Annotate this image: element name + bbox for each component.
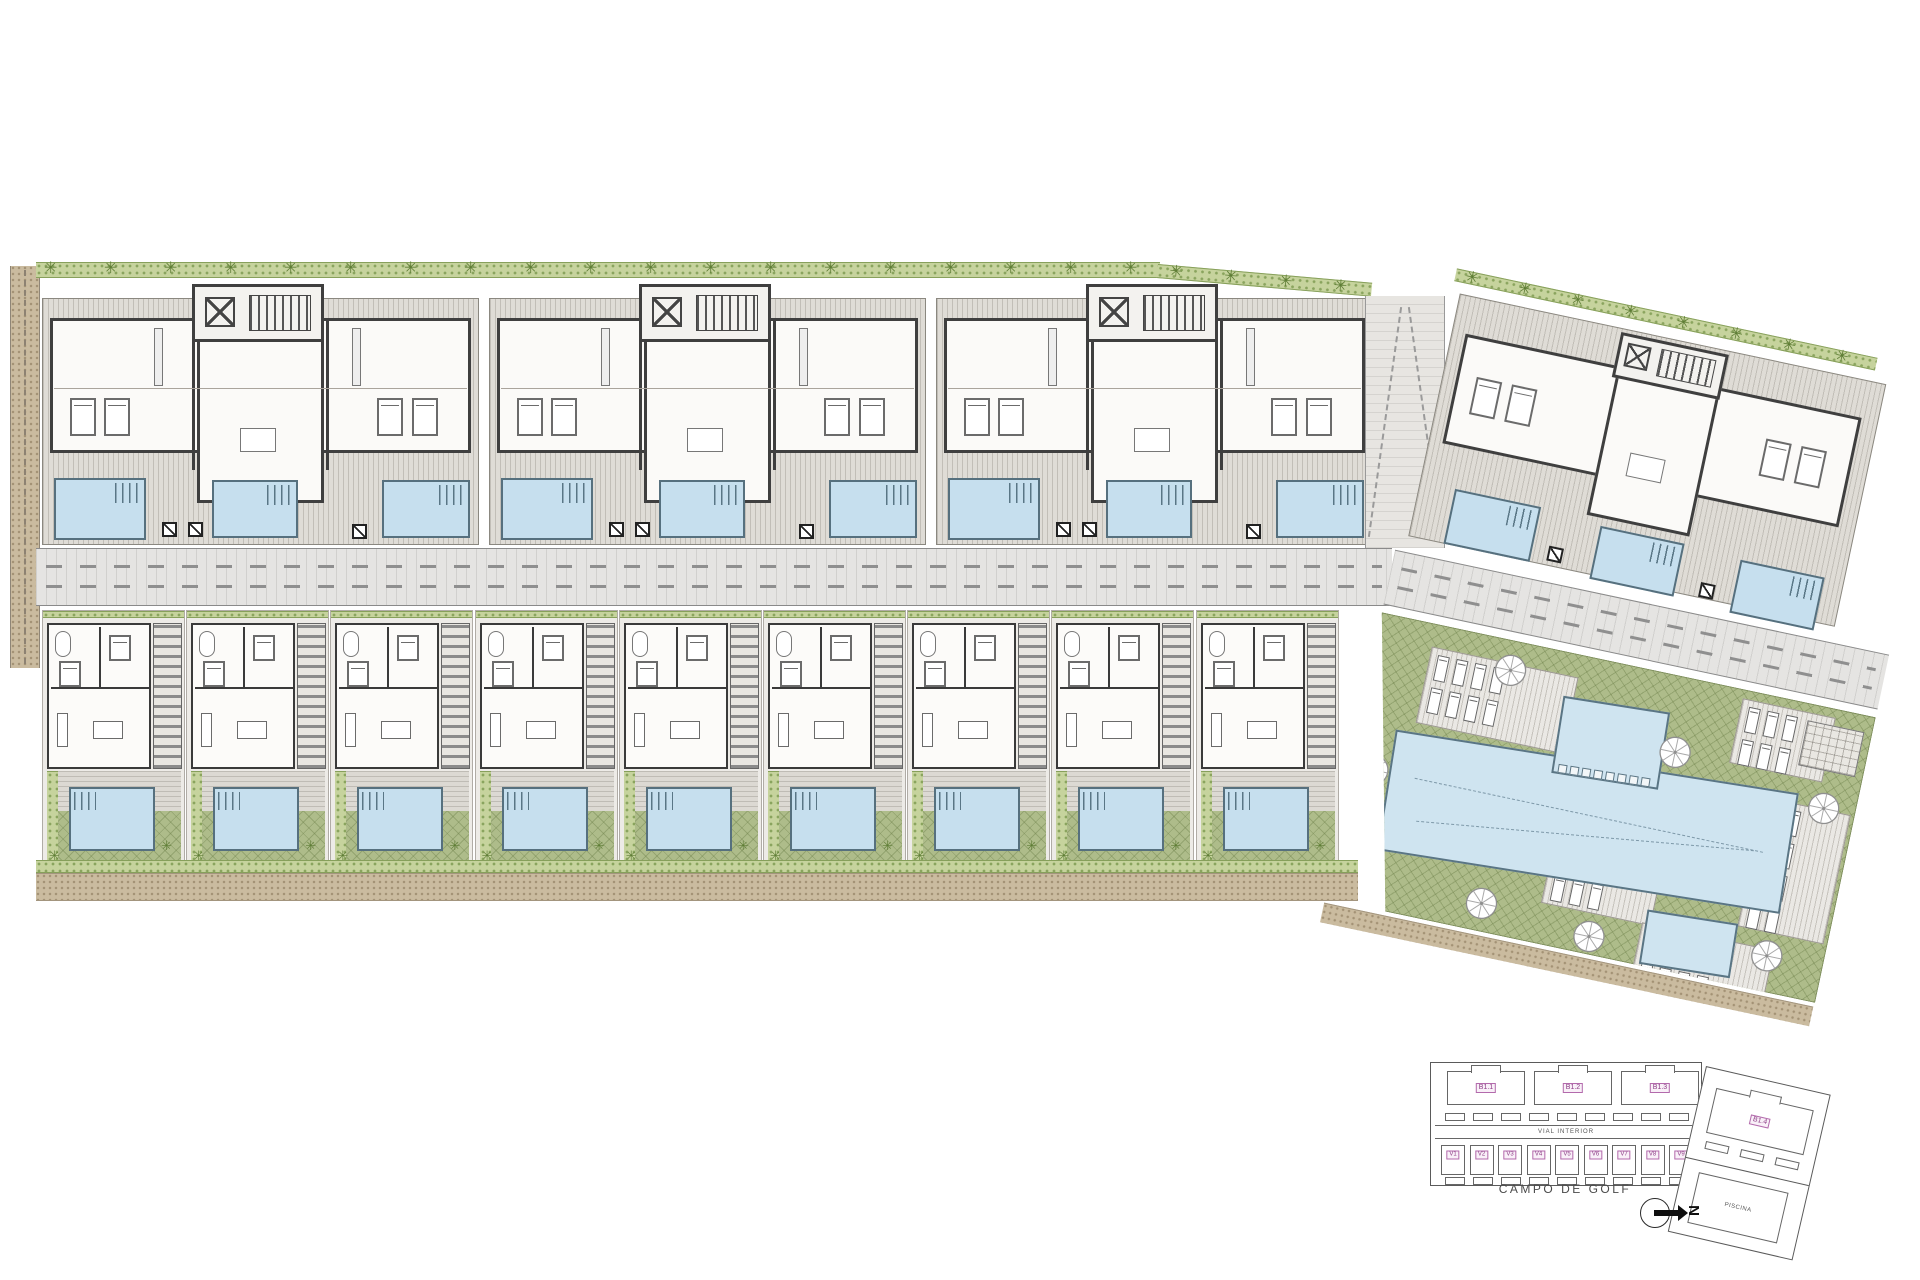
villa-pool: [357, 787, 443, 851]
palm-tree-icon: ✳: [449, 839, 460, 852]
villa-house: [1201, 623, 1305, 769]
palm-tree-icon: ✳: [344, 261, 357, 277]
sun-lounger: [1762, 711, 1779, 739]
palm-tree-icon: ✳: [404, 261, 417, 277]
bed: [70, 398, 96, 436]
parasol-icon: [1461, 883, 1501, 923]
villa-front-hedge: [331, 611, 472, 618]
villa-house: [624, 623, 728, 769]
bed: [551, 398, 577, 436]
palm-tree-icon: ✳: [1169, 264, 1184, 281]
partition-wall: [1205, 687, 1303, 689]
sofa: [634, 713, 645, 747]
partition-wall: [772, 687, 870, 689]
sun-lounger: [1433, 655, 1450, 683]
partition-wall: [99, 627, 101, 687]
key-plan-pad: [1445, 1113, 1465, 1121]
bathtub-icon: [632, 631, 648, 657]
drain-box: [1698, 582, 1716, 600]
elevator-icon: [1099, 297, 1129, 327]
villa-4: ✳ ✳: [475, 610, 618, 872]
key-plan-pad: [1739, 1149, 1764, 1162]
villa-6: ✳ ✳: [763, 610, 906, 872]
villa-label: V7: [1617, 1151, 1630, 1160]
key-plan-pad: [1501, 1113, 1521, 1121]
table: [687, 428, 723, 452]
bottom-hedge: [36, 860, 1358, 873]
villa-stairs: [874, 623, 903, 769]
stairs-icon: [1656, 349, 1717, 388]
palm-tree-icon: ✳: [284, 261, 297, 277]
block-building-center: [644, 318, 771, 503]
villa-3: ✳ ✳: [330, 610, 473, 872]
unit-divider-wall: [773, 318, 776, 470]
bed: [412, 398, 438, 436]
sofa: [345, 713, 356, 747]
palm-tree-icon: ✳: [1223, 269, 1238, 286]
villa-label: V4: [1532, 1151, 1545, 1160]
sun-lounger: [1426, 687, 1443, 715]
villa-label: V1: [1446, 1151, 1459, 1160]
parasol-icon: [1804, 788, 1844, 828]
villa-house: [191, 623, 295, 769]
bathtub-icon: [199, 631, 215, 657]
private-pool: [948, 478, 1040, 540]
gravel-path-left: [10, 266, 40, 668]
block-label: B1.3: [1650, 1083, 1670, 1093]
sofa: [490, 713, 501, 747]
palm-tree-icon: ✳: [1516, 281, 1532, 299]
partition-wall: [964, 627, 966, 687]
palm-tree-icon: ✳: [224, 261, 237, 277]
private-pool: [1276, 480, 1364, 538]
villa-pool: [69, 787, 155, 851]
bathtub-icon: [488, 631, 504, 657]
sun-lounger: [1781, 715, 1798, 743]
bathtub-icon: [776, 631, 792, 657]
bed: [109, 635, 131, 661]
unit-divider-wall: [1220, 318, 1223, 470]
private-pool: [1106, 480, 1192, 538]
key-plan-villa: V4: [1527, 1145, 1551, 1175]
bed: [397, 635, 419, 661]
palm-tree-icon: ✳: [305, 839, 316, 852]
private-pool: [212, 480, 298, 538]
key-plan-pad: [1669, 1113, 1689, 1121]
kitchen-counter: [601, 328, 610, 386]
partition-wall: [916, 687, 1014, 689]
drain-box: [1546, 546, 1564, 564]
parasol-icon: [1655, 732, 1695, 772]
private-pool: [382, 480, 470, 538]
villa-pool: [502, 787, 588, 851]
bathtub-icon: [920, 631, 936, 657]
unit-divider-wall: [1086, 318, 1089, 470]
key-plan-villa: V1: [1441, 1145, 1465, 1175]
key-plan-villa: V2: [1470, 1145, 1494, 1175]
villa-stairs: [441, 623, 470, 769]
key-plan-main-outline: VIAL INTERIOR B1.1B1.2B1.3V1V2V3V4V5V6V7…: [1430, 1062, 1702, 1186]
palm-tree-icon: ✳: [738, 839, 749, 852]
villa-stairs: [1018, 623, 1047, 769]
block-building-center: [1091, 318, 1218, 503]
drain-box: [1056, 522, 1071, 537]
private-pool: [659, 480, 745, 538]
palm-tree-icon: ✳: [161, 839, 172, 852]
partition-line: [501, 388, 914, 389]
villa-pool: [790, 787, 876, 851]
interior-road: [36, 548, 1392, 606]
block-label: B1.1: [1476, 1083, 1496, 1093]
palm-tree-icon: ✳: [1170, 839, 1181, 852]
villa-stairs: [730, 623, 759, 769]
apartment-block-1: [42, 298, 479, 545]
north-arrow-icon: [1654, 1210, 1678, 1216]
villa-front-hedge: [908, 611, 1049, 618]
bathtub-icon: [1209, 631, 1225, 657]
kitchen-counter: [1048, 328, 1057, 386]
bed: [492, 661, 514, 687]
bed: [830, 635, 852, 661]
palm-tree-icon: ✳: [1026, 839, 1037, 852]
bed: [974, 635, 996, 661]
main-parcel: ✳✳✳✳✳✳✳✳✳✳✳✳✳✳✳✳✳✳✳ ✳✳✳✳: [10, 262, 1392, 910]
villa-house: [335, 623, 439, 769]
sofa: [1211, 713, 1222, 747]
table: [1247, 721, 1277, 739]
palm-tree-icon: ✳: [1569, 292, 1585, 310]
key-plan-villa: V7: [1612, 1145, 1636, 1175]
unit-divider-wall: [192, 318, 195, 470]
bed: [203, 661, 225, 687]
table: [814, 721, 844, 739]
bed: [686, 635, 708, 661]
table: [381, 721, 411, 739]
drain-box: [609, 522, 624, 537]
table: [93, 721, 123, 739]
block-label: B1.4: [1749, 1114, 1771, 1128]
bottom-path: [36, 873, 1358, 901]
key-plan-villa: V5: [1555, 1145, 1579, 1175]
villa-pool: [1223, 787, 1309, 851]
bed: [636, 661, 658, 687]
bed: [59, 661, 81, 687]
unit-divider-wall: [326, 318, 329, 470]
sun-lounger: [1756, 743, 1773, 771]
partition-wall: [628, 687, 726, 689]
drain-box: [188, 522, 203, 537]
bed: [964, 398, 990, 436]
villa-front-hedge: [476, 611, 617, 618]
villa-front-hedge: [1052, 611, 1193, 618]
pool-guide-line: [1415, 778, 1763, 853]
bed: [542, 635, 564, 661]
villa-house: [480, 623, 584, 769]
villa-pool: [1078, 787, 1164, 851]
sun-lounger: [1470, 663, 1487, 691]
sun-lounger: [1568, 879, 1585, 907]
stair-elevator-core: [639, 284, 771, 342]
villa-label: V3: [1503, 1151, 1516, 1160]
palm-tree-icon: ✳: [1333, 278, 1348, 295]
private-pool: [501, 478, 593, 540]
unit-divider-wall: [639, 318, 642, 470]
villa-label: V8: [1646, 1151, 1659, 1160]
key-plan-block: B1.1: [1447, 1071, 1525, 1105]
kitchen-counter: [352, 328, 361, 386]
partition-wall: [484, 687, 582, 689]
bed: [1213, 661, 1235, 687]
private-pool: [54, 478, 146, 540]
table: [670, 721, 700, 739]
stairs-icon: [1143, 295, 1205, 331]
drain-box: [352, 524, 367, 539]
road-lane-dash: [46, 585, 1382, 588]
villa-front-hedge: [1197, 611, 1338, 618]
villa-stairs: [297, 623, 326, 769]
partition-wall: [820, 627, 822, 687]
elevator-icon: [205, 297, 235, 327]
palm-tree-icon: ✳: [1278, 274, 1293, 291]
bathtub-icon: [1064, 631, 1080, 657]
palm-tree-icon: ✳: [644, 261, 657, 277]
sun-lounger: [1444, 691, 1461, 719]
bed: [780, 661, 802, 687]
north-arrow: N: [1630, 1194, 1730, 1240]
palm-tree-icon: ✳: [764, 261, 777, 277]
key-plan-pad: [1585, 1113, 1605, 1121]
bed: [1263, 635, 1285, 661]
palm-tree-icon: ✳: [884, 261, 897, 277]
sun-lounger: [1737, 739, 1754, 767]
partition-line: [948, 388, 1361, 389]
north-letter: N: [1685, 1205, 1702, 1216]
apartment-block-3: [936, 298, 1373, 545]
villa-front-hedge: [620, 611, 761, 618]
block-building-center: [197, 318, 324, 503]
palm-tree-icon: ✳: [1004, 261, 1017, 277]
palm-tree-icon: ✳: [584, 261, 597, 277]
bed: [824, 398, 850, 436]
key-plan-pad: [1774, 1157, 1799, 1170]
parasol-icon: [1353, 750, 1393, 790]
palm-tree-icon: ✳: [1781, 337, 1797, 355]
villa-front-hedge: [43, 611, 184, 618]
sun-lounger: [1451, 659, 1468, 687]
bathtub-icon: [343, 631, 359, 657]
palm-tree-icon: ✳: [464, 261, 477, 277]
villa-stairs: [586, 623, 615, 769]
elevator-icon: [652, 297, 682, 327]
partition-wall: [339, 687, 437, 689]
partition-wall: [532, 627, 534, 687]
stairs-icon: [696, 295, 758, 331]
key-plan: VIAL INTERIOR B1.1B1.2B1.3V1V2V3V4V5V6V7…: [1425, 1052, 1895, 1267]
palm-tree-icon: ✳: [524, 261, 537, 277]
key-plan-pad: [1529, 1113, 1549, 1121]
partition-wall: [51, 687, 149, 689]
bed: [1271, 398, 1297, 436]
bed: [924, 661, 946, 687]
palm-tree-icon: ✳: [704, 261, 717, 277]
palm-tree-icon: ✳: [882, 839, 893, 852]
bed: [1306, 398, 1332, 436]
sun-lounger: [1463, 695, 1480, 723]
partition-wall: [387, 627, 389, 687]
key-plan-pad: [1613, 1113, 1633, 1121]
sofa: [57, 713, 68, 747]
villa-stairs: [1162, 623, 1191, 769]
villa-house: [912, 623, 1016, 769]
palm-tree-icon: ✳: [1464, 270, 1480, 288]
palm-tree-icon: ✳: [44, 261, 57, 277]
table: [526, 721, 556, 739]
villa-5: ✳ ✳: [619, 610, 762, 872]
key-plan-pad: [1557, 1113, 1577, 1121]
bed: [253, 635, 275, 661]
sofa: [778, 713, 789, 747]
kitchen-counter: [1246, 328, 1255, 386]
elevator-icon: [1623, 343, 1651, 371]
partition-wall: [195, 687, 293, 689]
villa-9: ✳ ✳: [1196, 610, 1339, 872]
table: [1102, 721, 1132, 739]
palm-tree-icon: ✳: [1675, 314, 1691, 332]
kitchen-counter: [154, 328, 163, 386]
table: [958, 721, 988, 739]
villa-house: [768, 623, 872, 769]
partition-line: [54, 388, 467, 389]
key-plan-road-label: VIAL INTERIOR: [1435, 1125, 1697, 1139]
stairs-icon: [249, 295, 311, 331]
palm-tree-icon: ✳: [1315, 839, 1326, 852]
kitchen-counter: [799, 328, 808, 386]
drain-box: [162, 522, 177, 537]
stair-elevator-core: [1086, 284, 1218, 342]
sun-lounger: [1744, 707, 1761, 735]
partition-wall: [243, 627, 245, 687]
villa-2: ✳ ✳: [186, 610, 329, 872]
private-pool: [829, 480, 917, 538]
palm-tree-icon: ✳: [164, 261, 177, 277]
villa-pool: [213, 787, 299, 851]
bed: [347, 661, 369, 687]
top-hedge: ✳✳✳✳✳✳✳✳✳✳✳✳✳✳✳✳✳✳✳: [36, 262, 1160, 278]
key-plan-block: B1.2: [1534, 1071, 1612, 1105]
bed: [1118, 635, 1140, 661]
partition-wall: [1108, 627, 1110, 687]
sofa: [1066, 713, 1077, 747]
bathtub-icon: [55, 631, 71, 657]
palm-tree-icon: ✳: [104, 261, 117, 277]
bed: [517, 398, 543, 436]
key-plan-pad: [1641, 1113, 1661, 1121]
communal-pool-secondary: [1551, 696, 1670, 790]
villa-stairs: [153, 623, 182, 769]
villa-house: [47, 623, 151, 769]
site-plan-canvas: ✳✳✳✳✳✳✳✳✳✳✳✳✳✳✳✳✳✳✳ ✳✳✳✳: [0, 0, 1920, 1280]
key-plan-villa: V8: [1641, 1145, 1665, 1175]
table: [1134, 428, 1170, 452]
palm-tree-icon: ✳: [594, 839, 605, 852]
key-plan-villa: V6: [1584, 1145, 1608, 1175]
sun-lounger: [1482, 699, 1499, 727]
villa-stairs: [1307, 623, 1336, 769]
key-plan-pad: [1473, 1113, 1493, 1121]
palm-tree-icon: ✳: [1622, 303, 1638, 321]
drain-box: [799, 524, 814, 539]
palm-tree-icon: ✳: [824, 261, 837, 277]
villa-label: V6: [1589, 1151, 1602, 1160]
drain-box: [1082, 522, 1097, 537]
palm-tree-icon: ✳: [1833, 348, 1849, 366]
bed: [1068, 661, 1090, 687]
partition-wall: [1253, 627, 1255, 687]
villa-front-hedge: [764, 611, 905, 618]
villa-pool: [934, 787, 1020, 851]
table: [240, 428, 276, 452]
sofa: [201, 713, 212, 747]
key-plan-block: B1.3: [1621, 1071, 1699, 1105]
key-plan-pad: [1704, 1141, 1729, 1154]
drain-box: [1246, 524, 1261, 539]
bed: [998, 398, 1024, 436]
villa-7: ✳ ✳: [907, 610, 1050, 872]
partition-wall: [676, 627, 678, 687]
parasol-icon: [1490, 650, 1530, 690]
villa-pool: [646, 787, 732, 851]
road-lane-dash: [46, 565, 1382, 568]
villa-8: ✳ ✳: [1051, 610, 1194, 872]
palm-tree-icon: ✳: [1124, 261, 1137, 277]
block-label: B1.2: [1563, 1083, 1583, 1093]
villa-front-hedge: [187, 611, 328, 618]
bed: [377, 398, 403, 436]
villa-house: [1056, 623, 1160, 769]
pool-guide-line: [1416, 821, 1754, 852]
sun-lounger: [1587, 883, 1604, 911]
bed: [859, 398, 885, 436]
villa-label: V5: [1560, 1151, 1573, 1160]
bed: [104, 398, 130, 436]
key-plan-villa: V3: [1498, 1145, 1522, 1175]
palm-tree-icon: ✳: [944, 261, 957, 277]
drain-box: [635, 522, 650, 537]
palm-tree-icon: ✳: [1728, 326, 1744, 344]
villa-label: V2: [1475, 1151, 1488, 1160]
parasol-icon: [1569, 916, 1609, 956]
apartment-block-2: [489, 298, 926, 545]
parasol-icon: [1747, 936, 1787, 976]
table: [237, 721, 267, 739]
stair-elevator-core: [192, 284, 324, 342]
villa-1: ✳ ✳: [42, 610, 185, 872]
palm-tree-icon: ✳: [1064, 261, 1077, 277]
sun-lounger: [1774, 747, 1791, 775]
partition-wall: [1060, 687, 1158, 689]
sofa: [922, 713, 933, 747]
